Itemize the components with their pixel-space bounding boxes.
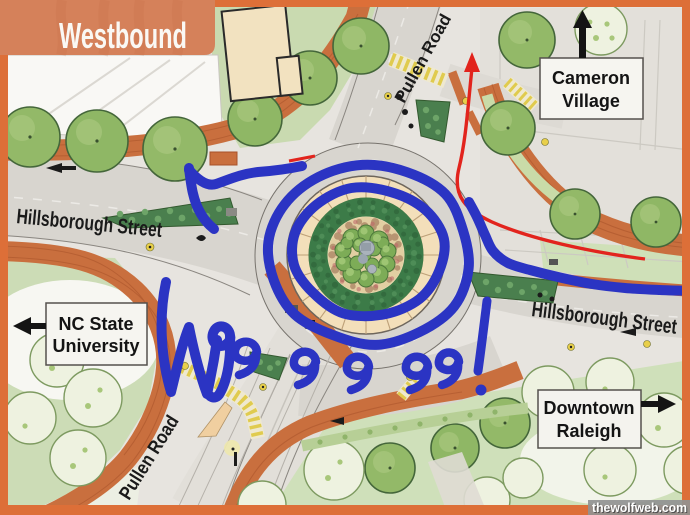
svg-text:Westbound: Westbound (59, 16, 187, 56)
svg-text:Raleigh: Raleigh (556, 421, 621, 441)
svg-text:thewolfweb.com: thewolfweb.com (592, 500, 687, 515)
svg-text:Cameron: Cameron (552, 68, 630, 88)
svg-text:University: University (52, 336, 139, 356)
svg-text:Downtown: Downtown (544, 398, 635, 418)
svg-text:NC State: NC State (58, 314, 133, 334)
svg-text:Village: Village (562, 91, 620, 111)
